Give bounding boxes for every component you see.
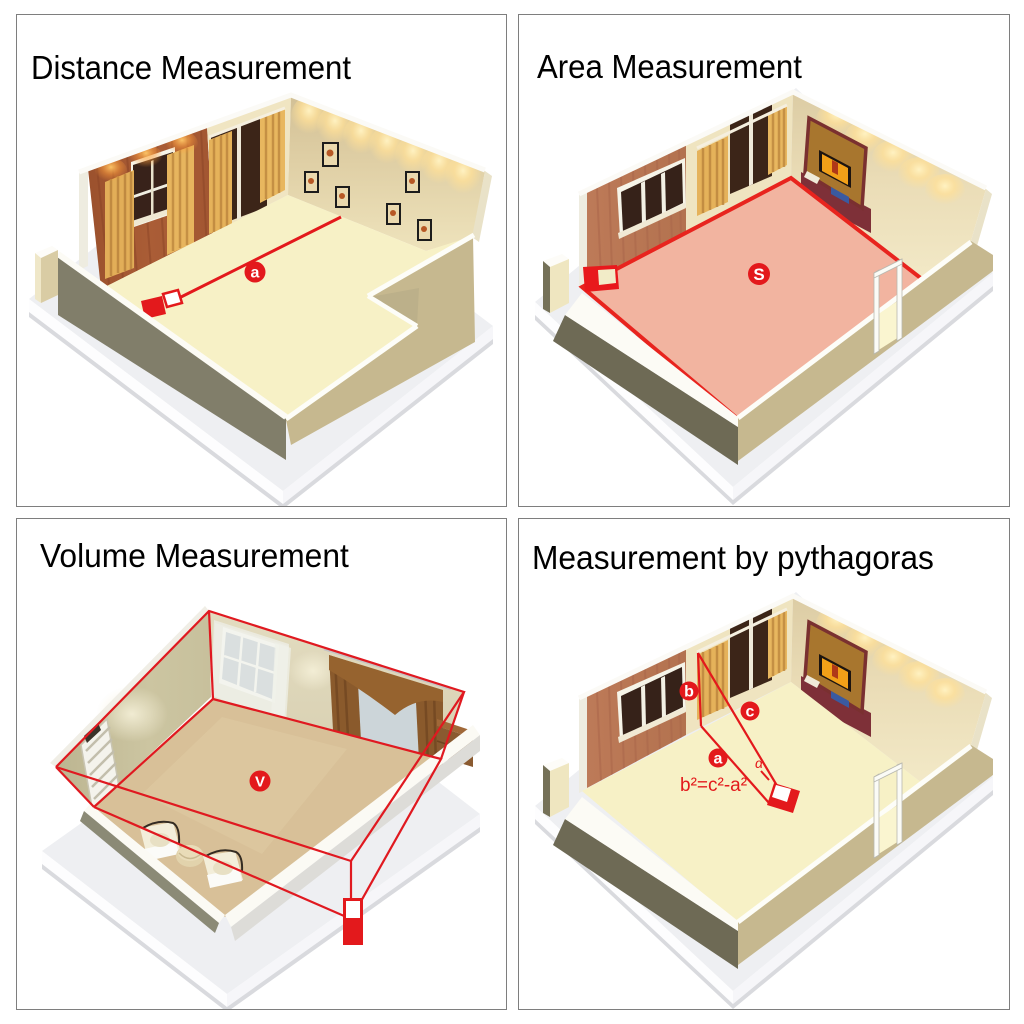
svg-text:α: α [755, 755, 764, 771]
svg-text:a: a [714, 751, 723, 768]
svg-text:S: S [753, 265, 764, 284]
svg-text:c: c [746, 704, 755, 721]
svg-text:a: a [251, 265, 260, 282]
svg-text:V: V [255, 774, 265, 791]
svg-text:b²=c²-a²: b²=c²-a² [680, 775, 747, 796]
svg-text:b: b [684, 684, 694, 701]
